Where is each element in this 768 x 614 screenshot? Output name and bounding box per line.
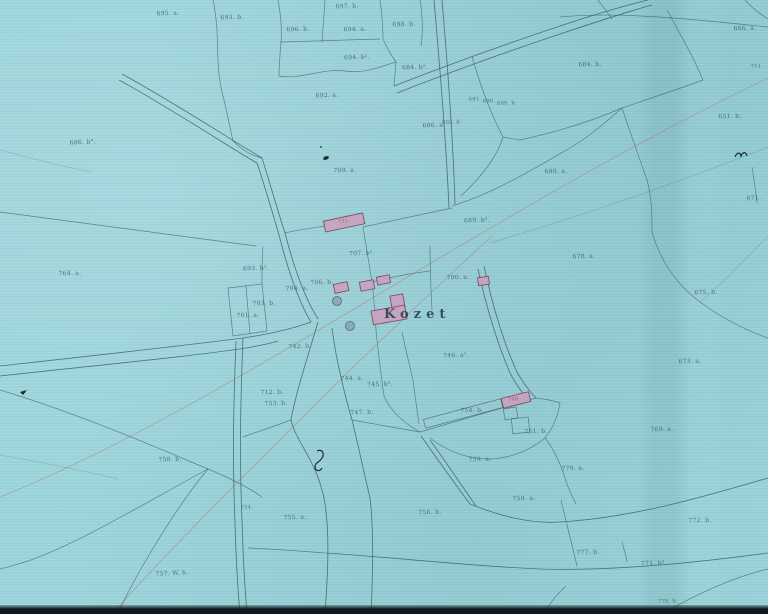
building — [501, 392, 531, 408]
building — [333, 282, 349, 294]
round-structure — [333, 297, 342, 306]
building — [376, 275, 390, 285]
round-structure — [346, 322, 355, 331]
cadastral-map: 695. a.693. b.697. b.696. b.694. a.698. … — [0, 0, 768, 614]
building-outline — [503, 407, 518, 420]
building-outline — [423, 399, 503, 428]
ink-squiggle — [315, 450, 323, 470]
ink-bird-mark — [735, 153, 747, 157]
ink-dot — [320, 146, 322, 148]
survey-lines-layer — [0, 78, 768, 614]
photo-edge-strip — [0, 605, 768, 614]
building — [323, 213, 364, 232]
building-outline — [511, 417, 529, 434]
building — [477, 276, 489, 285]
village-name-label: Kozet — [384, 307, 450, 322]
ink-arrow-mark — [20, 390, 27, 395]
ink-blot — [323, 155, 330, 160]
buildings-layer — [323, 213, 530, 434]
